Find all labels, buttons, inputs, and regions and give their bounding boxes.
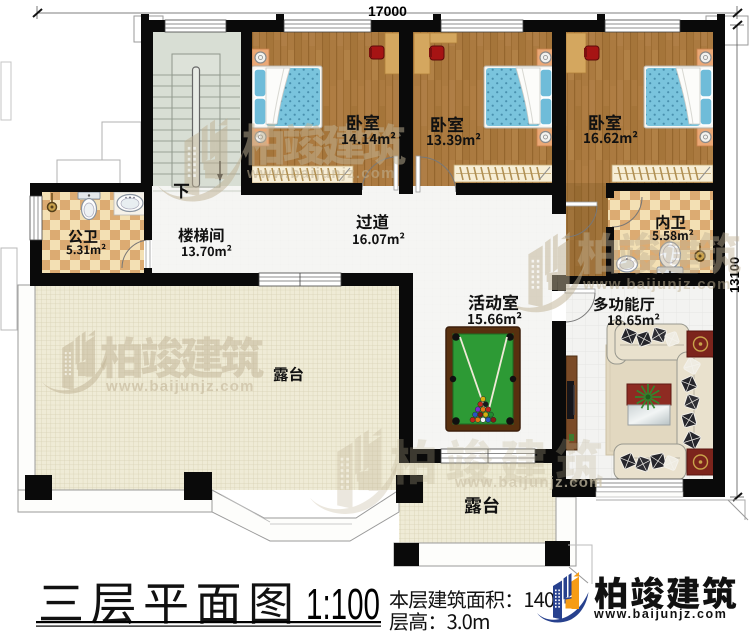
svg-text:17000: 17000 (368, 3, 407, 19)
svg-text:www.baijunjz.com: www.baijunjz.com (582, 276, 732, 293)
svg-text:www.baijunjz.com: www.baijunjz.com (105, 378, 255, 395)
svg-text:www.baijunjz.com: www.baijunjz.com (454, 474, 604, 491)
svg-text:www.baijunjz.com: www.baijunjz.com (246, 165, 396, 182)
svg-text:www.baijunjz.com: www.baijunjz.com (593, 607, 727, 621)
